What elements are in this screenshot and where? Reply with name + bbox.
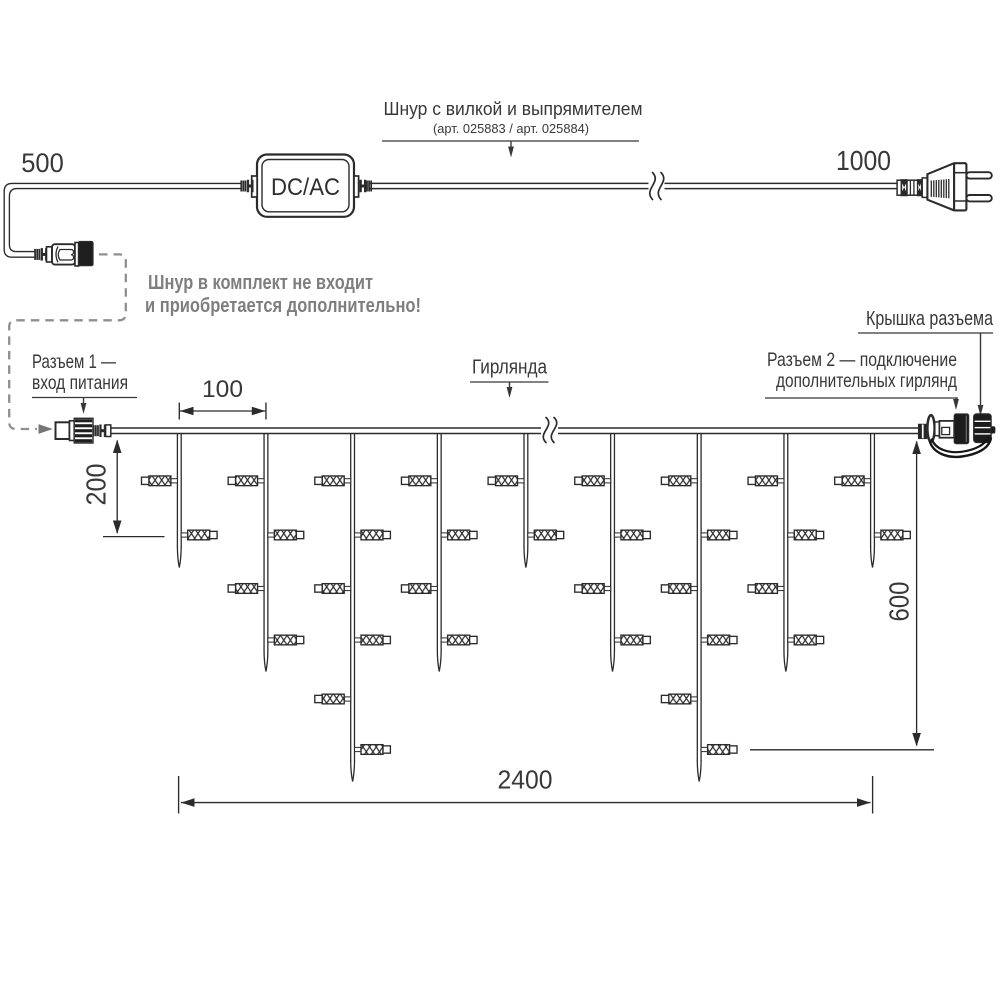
svg-text:Разъем 1 —: Разъем 1 —	[32, 351, 116, 373]
svg-text:(арт. 025883 / арт. 025884): (арт. 025883 / арт. 025884)	[433, 121, 589, 136]
svg-text:Гирлянда: Гирлянда	[472, 357, 548, 379]
svg-text:100: 100	[202, 376, 243, 403]
svg-text:500: 500	[21, 148, 64, 178]
svg-text:2400: 2400	[498, 767, 553, 795]
svg-text:Крышка разъема: Крышка разъема	[866, 308, 994, 330]
svg-text:1000: 1000	[836, 145, 891, 176]
svg-text:DC/AC: DC/AC	[271, 174, 340, 201]
svg-text:Разъем 2 — подключение: Разъем 2 — подключение	[767, 349, 957, 371]
svg-text:вход питания: вход питания	[32, 372, 128, 394]
svg-text:Шнур в комплект не входит: Шнур в комплект не входит	[148, 272, 373, 294]
svg-text:дополнительных гирлянд: дополнительных гирлянд	[776, 370, 957, 392]
svg-text:Шнур с вилкой и выпрямителем: Шнур с вилкой и выпрямителем	[384, 98, 643, 119]
svg-text:и приобретается дополнительно!: и приобретается дополнительно!	[145, 295, 421, 317]
svg-text:600: 600	[884, 582, 915, 622]
svg-text:200: 200	[81, 464, 112, 506]
